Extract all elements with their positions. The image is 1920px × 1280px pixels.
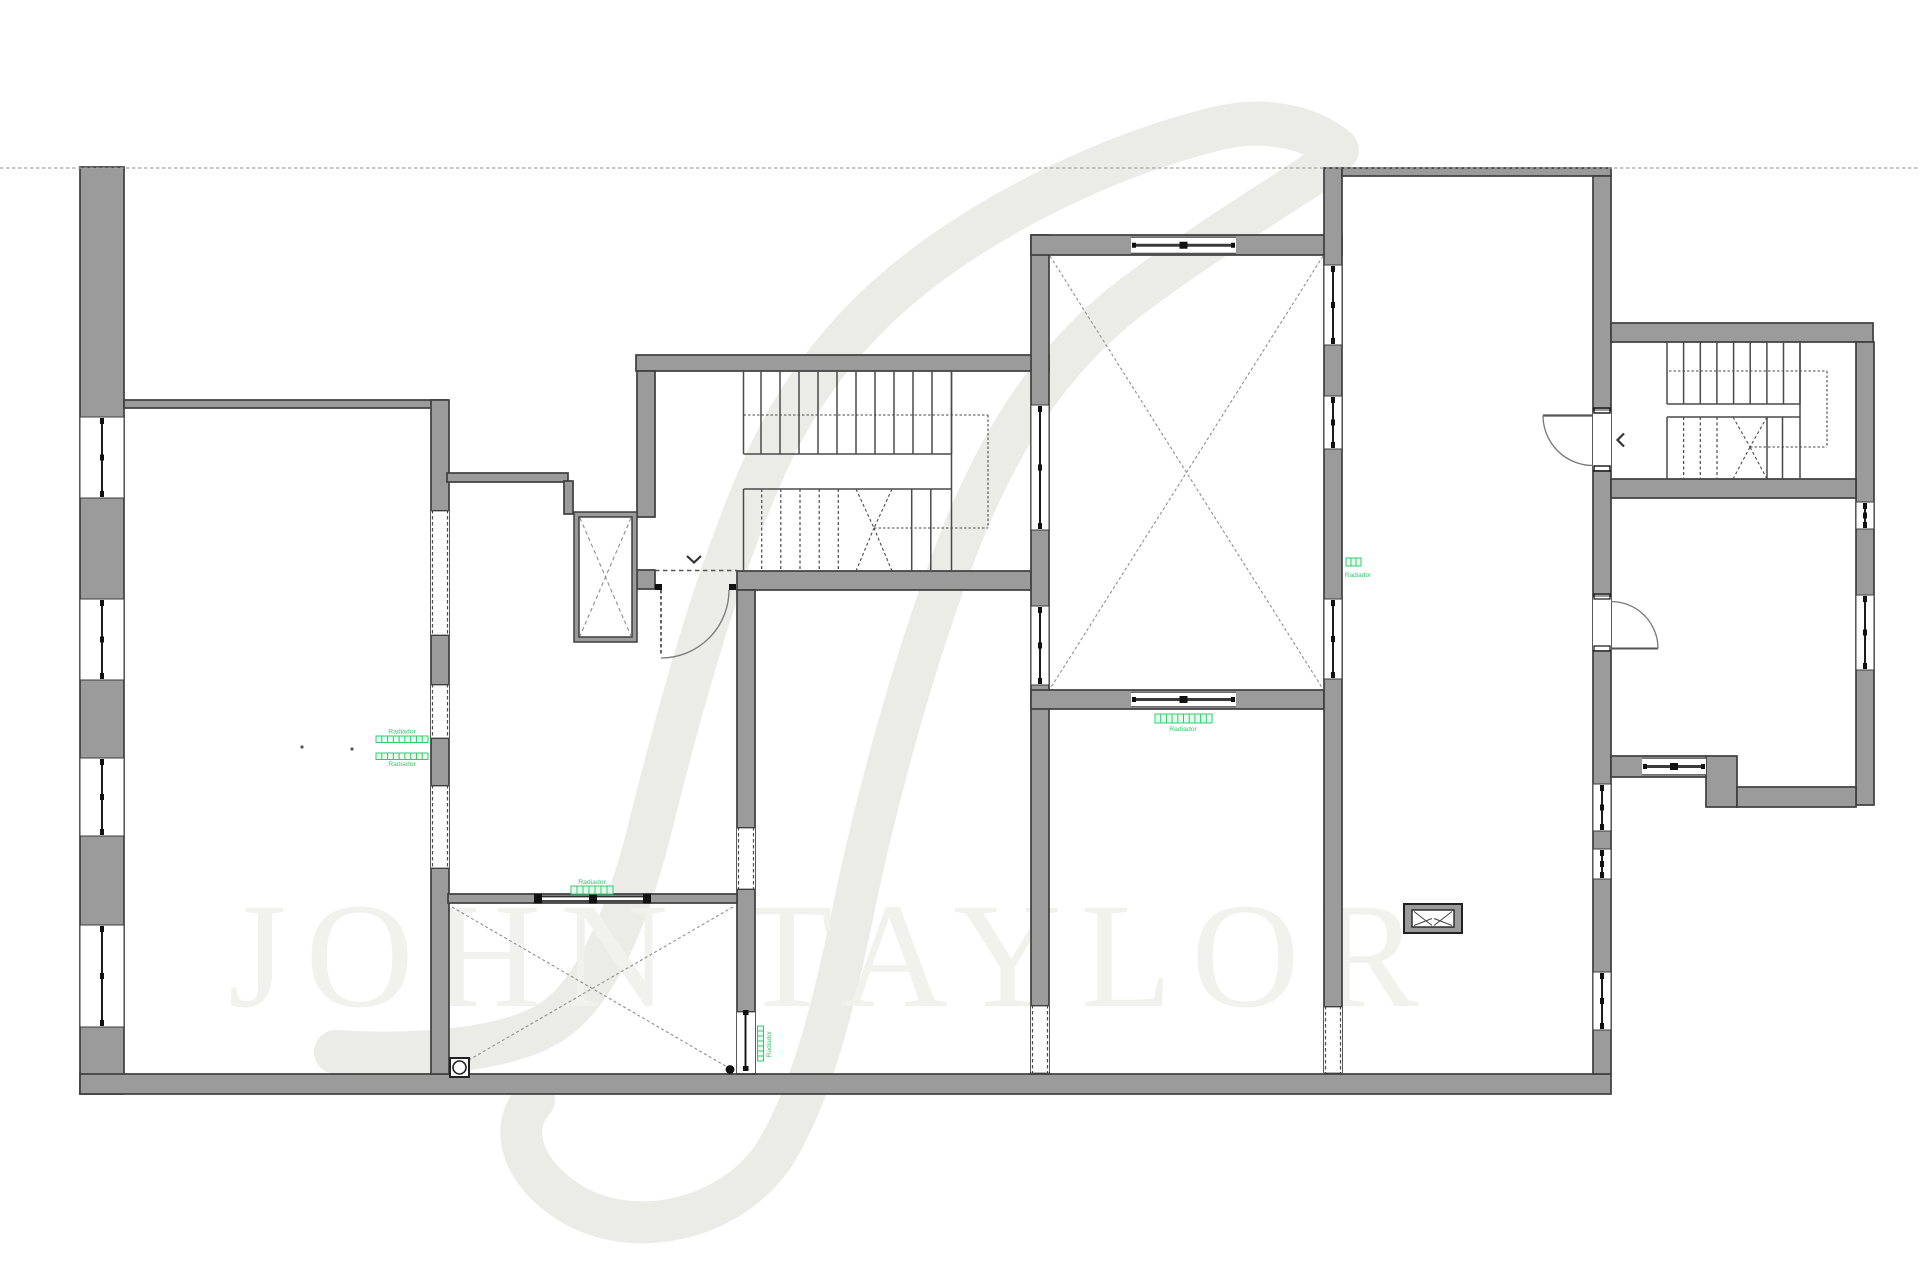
svg-text:Radiador: Radiador (766, 1030, 773, 1057)
svg-text:Radiador: Radiador (1345, 572, 1372, 579)
svg-text:Radiador: Radiador (388, 729, 416, 736)
svg-text:Radiador: Radiador (578, 879, 606, 886)
svg-text:Radiador: Radiador (388, 761, 416, 768)
svg-text:Radiador: Radiador (1169, 726, 1197, 733)
svg-text:JOHN TAYLOR: JOHN TAYLOR (228, 873, 1438, 1039)
